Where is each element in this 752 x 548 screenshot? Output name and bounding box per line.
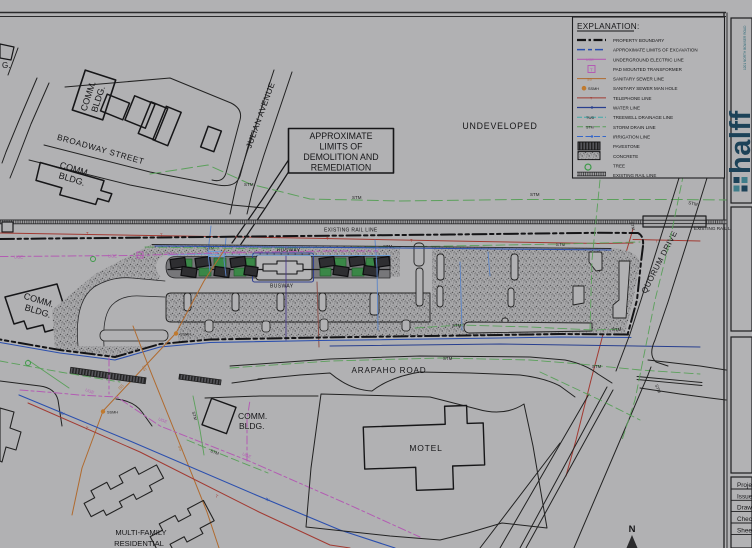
svg-text:T: T	[410, 238, 413, 243]
svg-text:TREEWELL DRAINAGE LINE: TREEWELL DRAINAGE LINE	[613, 115, 673, 120]
svg-text:UNDERGROUND ELECTRIC LINE: UNDERGROUND ELECTRIC LINE	[613, 57, 684, 62]
svg-text:ARAPAHO ROAD: ARAPAHO ROAD	[352, 366, 427, 375]
svg-text:EXISTING RAIL LINE: EXISTING RAIL LINE	[324, 228, 378, 234]
svg-text:MULTI-FAMILY: MULTI-FAMILY	[115, 528, 166, 537]
svg-text:COMM.: COMM.	[238, 411, 267, 421]
svg-text:REMEDIATION: REMEDIATION	[311, 163, 371, 173]
svg-text:PROPERTY BOUNDARY: PROPERTY BOUNDARY	[613, 38, 664, 43]
svg-text:WATER LINE: WATER LINE	[613, 106, 640, 111]
svg-text:Shee: Shee	[737, 528, 752, 535]
svg-text:BUSWAY: BUSWAY	[270, 284, 294, 290]
svg-text:EXISTING RAIL LINE: EXISTING RAIL LINE	[613, 173, 656, 178]
svg-text:Proje: Proje	[737, 482, 752, 489]
svg-text:BLDG.: BLDG.	[239, 421, 265, 431]
svg-text:STM: STM	[352, 195, 362, 200]
svg-text:T: T	[590, 67, 593, 72]
svg-text:SANITARY SEWER MAN HOLE: SANITARY SEWER MAN HOLE	[613, 86, 678, 91]
svg-text:SSMH: SSMH	[588, 87, 599, 91]
svg-text:APPROXIMATE LIMITS OF EXCAVATI: APPROXIMATE LIMITS OF EXCAVATION	[613, 48, 698, 53]
svg-text:IRRIGATION LINE: IRRIGATION LINE	[613, 135, 650, 140]
svg-text:STM: STM	[530, 192, 540, 197]
svg-text:UGE: UGE	[232, 250, 241, 255]
svg-text:EXISTING RAIL LIN: EXISTING RAIL LIN	[694, 226, 735, 231]
svg-text:UGE: UGE	[586, 58, 594, 62]
svg-text:SSMH: SSMH	[107, 411, 118, 415]
svg-text:SS: SS	[587, 77, 592, 81]
svg-text:CONCRETE: CONCRETE	[613, 154, 638, 159]
svg-text:SSMH: SSMH	[180, 333, 191, 337]
svg-text:UNDEVELOPED: UNDEVELOPED	[462, 121, 537, 131]
svg-text:PAD MOUNTED TRANSFORMER: PAD MOUNTED TRANSFORMER	[613, 67, 683, 72]
svg-text:STM: STM	[612, 327, 622, 332]
svg-text:PAVESTONE: PAVESTONE	[613, 144, 640, 149]
svg-text:TWD: TWD	[586, 116, 595, 120]
svg-text:STM: STM	[586, 126, 594, 130]
svg-text:Issue: Issue	[737, 493, 752, 500]
svg-text:RESIDENTIAL: RESIDENTIAL	[114, 539, 164, 548]
svg-text:Chec: Chec	[737, 516, 752, 523]
svg-text:STORM DRAIN LINE: STORM DRAIN LINE	[613, 125, 656, 130]
svg-text:TREE: TREE	[613, 163, 625, 168]
svg-text:UGE: UGE	[14, 255, 23, 260]
svg-text:STM: STM	[244, 182, 254, 187]
svg-text:Draw: Draw	[737, 505, 752, 512]
svg-text:STM: STM	[592, 364, 602, 369]
svg-text:1201 NORTH BOWSER ROAD: 1201 NORTH BOWSER ROAD	[743, 25, 747, 70]
svg-text:BUSWAY: BUSWAY	[277, 248, 301, 254]
svg-text:T: T	[655, 239, 658, 244]
svg-text:SANITARY SEWER LINE: SANITARY SEWER LINE	[613, 77, 664, 82]
svg-text:TELEPHONE LINE: TELEPHONE LINE	[613, 96, 652, 101]
svg-text:T: T	[326, 236, 329, 241]
svg-text:halff: halff	[725, 110, 752, 174]
svg-text:T: T	[86, 231, 89, 236]
svg-text:DEMOLITION AND: DEMOLITION AND	[303, 152, 378, 162]
svg-text:UGE: UGE	[108, 254, 117, 259]
svg-text:N: N	[629, 524, 636, 535]
svg-text:G.: G.	[2, 61, 10, 70]
svg-text:STM: STM	[443, 356, 453, 361]
svg-text:STM: STM	[556, 242, 566, 247]
svg-text:EXPLANATION:: EXPLANATION:	[577, 22, 640, 31]
svg-text:LIMITS OF: LIMITS OF	[319, 142, 363, 152]
svg-text:STM: STM	[452, 323, 462, 328]
svg-text:UGE: UGE	[165, 251, 174, 256]
svg-text:APPROXIMATE: APPROXIMATE	[310, 131, 373, 141]
svg-text:MOTEL: MOTEL	[409, 443, 442, 453]
